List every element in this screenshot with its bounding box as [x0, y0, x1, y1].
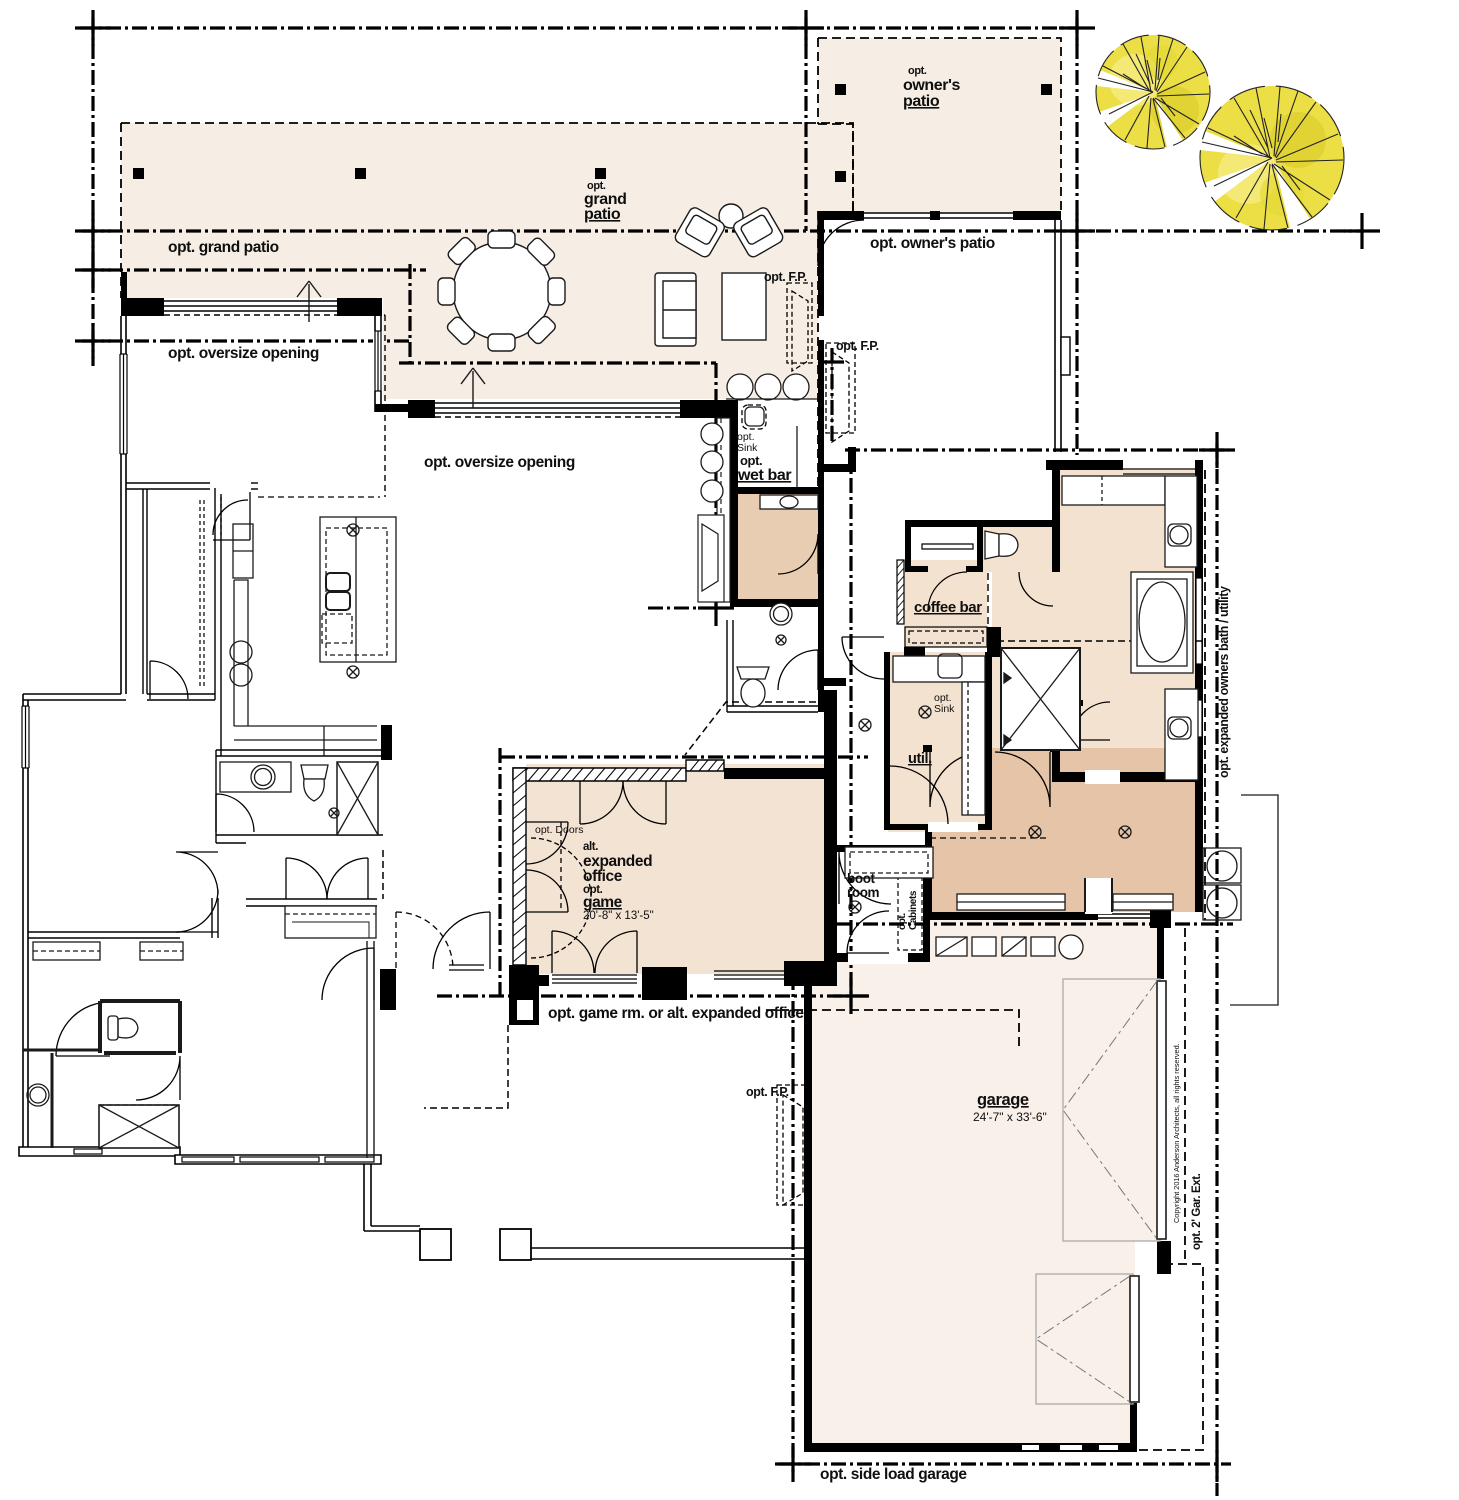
- svg-text:opt.: opt.: [908, 65, 927, 77]
- svg-text:opt. F.P.: opt. F.P.: [836, 339, 879, 353]
- svg-text:patio: patio: [584, 206, 621, 223]
- svg-text:patio: patio: [903, 93, 940, 110]
- svg-text:coffee bar: coffee bar: [914, 599, 982, 616]
- svg-text:opt. owner's patio: opt. owner's patio: [870, 235, 995, 252]
- svg-text:opt. game rm. or alt. expanded: opt. game rm. or alt. expanded office: [548, 1005, 804, 1022]
- svg-text:room: room: [847, 885, 880, 900]
- svg-text:20'-8" x 13'-5": 20'-8" x 13'-5": [583, 910, 654, 922]
- svg-text:opt. oversize opening: opt. oversize opening: [168, 345, 319, 362]
- svg-text:wet bar: wet bar: [737, 467, 791, 484]
- svg-text:opt.: opt.: [740, 453, 762, 468]
- svg-text:opt. oversize opening: opt. oversize opening: [424, 454, 575, 471]
- svg-text:opt. expanded owners bath / ut: opt. expanded owners bath / utility: [1217, 586, 1231, 778]
- svg-text:util.: util.: [908, 751, 932, 767]
- svg-text:office: office: [583, 868, 623, 885]
- svg-text:garage: garage: [977, 1091, 1029, 1109]
- svg-text:opt. Doors: opt. Doors: [535, 824, 583, 836]
- svg-text:owner's: owner's: [903, 77, 961, 94]
- svg-text:opt. grand patio: opt. grand patio: [168, 239, 279, 256]
- svg-text:Copyright 2016 Anderson Archit: Copyright 2016 Anderson Architects, all …: [1172, 1043, 1181, 1223]
- svg-text:alt.: alt.: [583, 841, 598, 853]
- svg-text:game: game: [583, 894, 623, 911]
- svg-text:24'-7" x 33'-6": 24'-7" x 33'-6": [973, 1110, 1047, 1124]
- svg-text:boot: boot: [847, 871, 876, 886]
- svg-text:opt. 2' Gar. Ext.: opt. 2' Gar. Ext.: [1191, 1173, 1203, 1250]
- svg-text:Sink: Sink: [934, 703, 955, 715]
- svg-text:opt.: opt.: [897, 913, 908, 930]
- svg-text:opt. F.P.: opt. F.P.: [746, 1085, 789, 1099]
- svg-text:opt. side load garage: opt. side load garage: [820, 1466, 967, 1483]
- svg-text:Cabinets: Cabinets: [908, 890, 919, 930]
- svg-text:opt. F.P.: opt. F.P.: [764, 270, 807, 284]
